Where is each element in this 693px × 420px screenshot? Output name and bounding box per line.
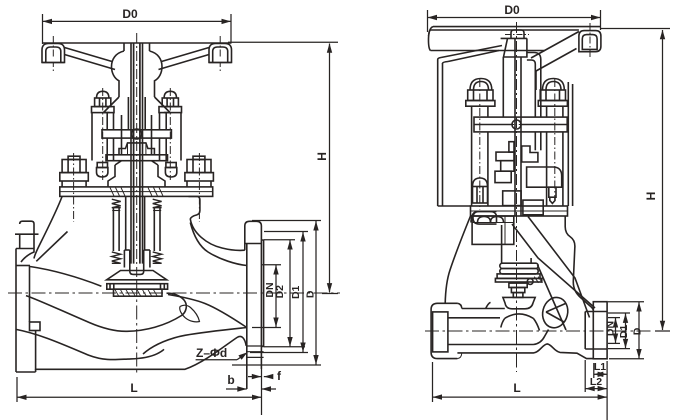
svg-text:L: L bbox=[130, 381, 137, 395]
svg-text:L1: L1 bbox=[594, 361, 606, 373]
svg-text:H: H bbox=[644, 192, 658, 201]
svg-text:D1: D1 bbox=[618, 325, 630, 339]
svg-text:D2: D2 bbox=[274, 285, 286, 299]
svg-text:Z–Φd: Z–Φd bbox=[196, 346, 227, 360]
svg-text:D: D bbox=[304, 290, 316, 298]
svg-text:L: L bbox=[513, 381, 520, 395]
svg-text:D: D bbox=[632, 327, 644, 335]
svg-text:b: b bbox=[227, 373, 234, 387]
svg-text:L2: L2 bbox=[590, 376, 602, 388]
svg-text:D1: D1 bbox=[290, 285, 302, 299]
svg-text:H: H bbox=[315, 152, 329, 161]
svg-text:DN: DN bbox=[605, 321, 617, 336]
svg-text:D0: D0 bbox=[504, 3, 520, 17]
svg-text:D0: D0 bbox=[122, 7, 138, 21]
